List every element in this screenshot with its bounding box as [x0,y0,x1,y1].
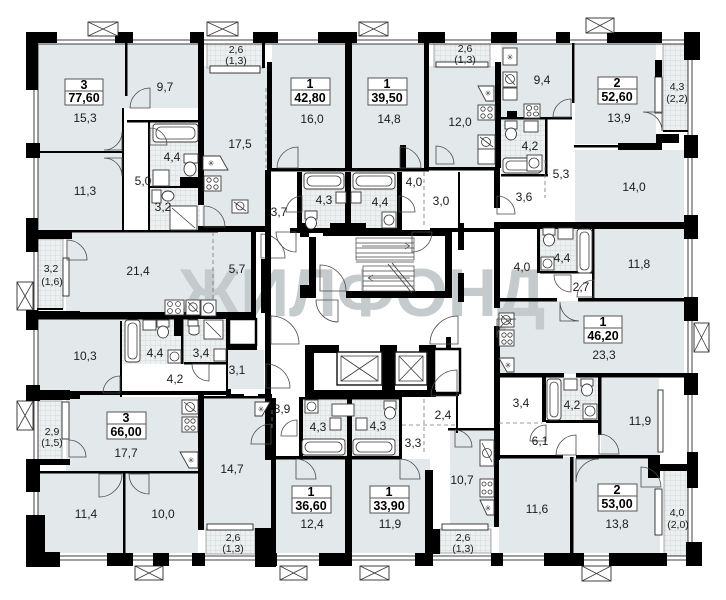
svg-text:13,9: 13,9 [607,111,631,125]
svg-text:66,00: 66,00 [110,425,141,439]
svg-text:4,2: 4,2 [564,398,581,412]
svg-text:4,3: 4,3 [370,419,387,433]
svg-text:9,4: 9,4 [534,73,551,87]
svg-text:✳: ✳ [485,504,492,513]
svg-text:1: 1 [307,77,314,91]
svg-text:3,6: 3,6 [516,190,533,204]
svg-text:1: 1 [384,77,391,91]
svg-text:(1,3): (1,3) [452,543,474,555]
svg-text:5,0: 5,0 [135,174,152,188]
svg-text:9,7: 9,7 [157,80,174,94]
svg-text:12,4: 12,4 [300,517,324,531]
svg-text:3,7: 3,7 [271,205,288,219]
svg-text:3,2: 3,2 [44,263,59,275]
svg-text:(1,5): (1,5) [41,437,63,449]
svg-text:6,1: 6,1 [532,434,549,448]
svg-text:16,0: 16,0 [300,112,324,126]
svg-text:11,3: 11,3 [74,184,97,198]
svg-text:2: 2 [614,76,621,90]
svg-text:✳: ✳ [258,405,265,414]
svg-text:2,4: 2,4 [435,408,452,422]
svg-text:2: 2 [614,483,621,497]
svg-text:4,4: 4,4 [554,251,571,265]
svg-text:3,1: 3,1 [229,363,246,377]
svg-text:(1,6): (1,6) [41,276,63,288]
svg-text:14,0: 14,0 [622,180,646,194]
svg-text:1: 1 [386,485,393,499]
svg-text:5,7: 5,7 [229,262,246,276]
svg-text:13,8: 13,8 [605,517,629,531]
svg-text:✳: ✳ [208,159,215,168]
svg-text:4,4: 4,4 [372,195,389,209]
svg-text:14,7: 14,7 [220,462,244,476]
svg-text:36,60: 36,60 [295,499,326,513]
svg-text:42,80: 42,80 [294,91,325,105]
svg-text:11,6: 11,6 [526,502,549,516]
svg-text:4,0: 4,0 [670,507,685,519]
svg-text:10,7: 10,7 [450,473,474,487]
svg-text:12,0: 12,0 [448,115,472,129]
svg-text:4,3: 4,3 [316,193,333,207]
svg-text:11,9: 11,9 [629,414,652,428]
svg-text:✳: ✳ [505,361,512,370]
svg-text:4,0: 4,0 [514,260,531,274]
svg-text:(2,2): (2,2) [666,93,688,105]
svg-text:4,0: 4,0 [406,175,423,189]
svg-text:23,3: 23,3 [592,348,616,362]
svg-text:52,60: 52,60 [601,90,632,104]
svg-text:3: 3 [123,411,130,425]
svg-text:46,20: 46,20 [587,329,618,343]
svg-text:11,9: 11,9 [379,517,402,531]
svg-text:77,60: 77,60 [68,91,99,105]
svg-text:10,3: 10,3 [73,349,97,363]
svg-text:11,4: 11,4 [75,507,98,521]
svg-text:39,50: 39,50 [371,91,402,105]
svg-text:3,0: 3,0 [433,194,450,208]
svg-text:3,9: 3,9 [274,402,291,416]
svg-text:14,8: 14,8 [377,112,401,126]
svg-text:3: 3 [81,78,88,92]
svg-text:3,3: 3,3 [405,436,422,450]
svg-text:17,7: 17,7 [114,446,138,460]
svg-text:4,2: 4,2 [167,372,184,386]
svg-text:21,4: 21,4 [126,264,150,278]
svg-text:10,0: 10,0 [151,507,175,521]
svg-text:✳: ✳ [188,456,195,465]
svg-text:✳: ✳ [507,53,514,62]
svg-text:4,3: 4,3 [670,81,685,93]
svg-text:3,2: 3,2 [155,200,172,214]
svg-text:(1,3): (1,3) [225,55,247,67]
svg-text:2,7: 2,7 [573,280,590,294]
svg-text:✳: ✳ [485,89,492,98]
svg-text:(1,3): (1,3) [454,54,476,66]
svg-text:1: 1 [600,315,607,329]
svg-text:4,4: 4,4 [147,346,164,360]
svg-text:17,5: 17,5 [228,137,252,151]
svg-text:3,4: 3,4 [513,396,530,410]
svg-text:1: 1 [308,485,315,499]
svg-text:11,8: 11,8 [628,257,651,271]
svg-text:4,2: 4,2 [522,139,539,153]
svg-text:15,3: 15,3 [73,111,97,125]
svg-text:33,90: 33,90 [373,499,404,513]
svg-text:(1,3): (1,3) [222,543,244,555]
svg-text:4,3: 4,3 [310,420,327,434]
svg-text:(2,0): (2,0) [667,519,689,531]
svg-text:5,3: 5,3 [553,167,570,181]
svg-text:4,4: 4,4 [164,150,181,164]
svg-text:3,4: 3,4 [193,346,210,360]
svg-text:53,00: 53,00 [601,497,632,511]
